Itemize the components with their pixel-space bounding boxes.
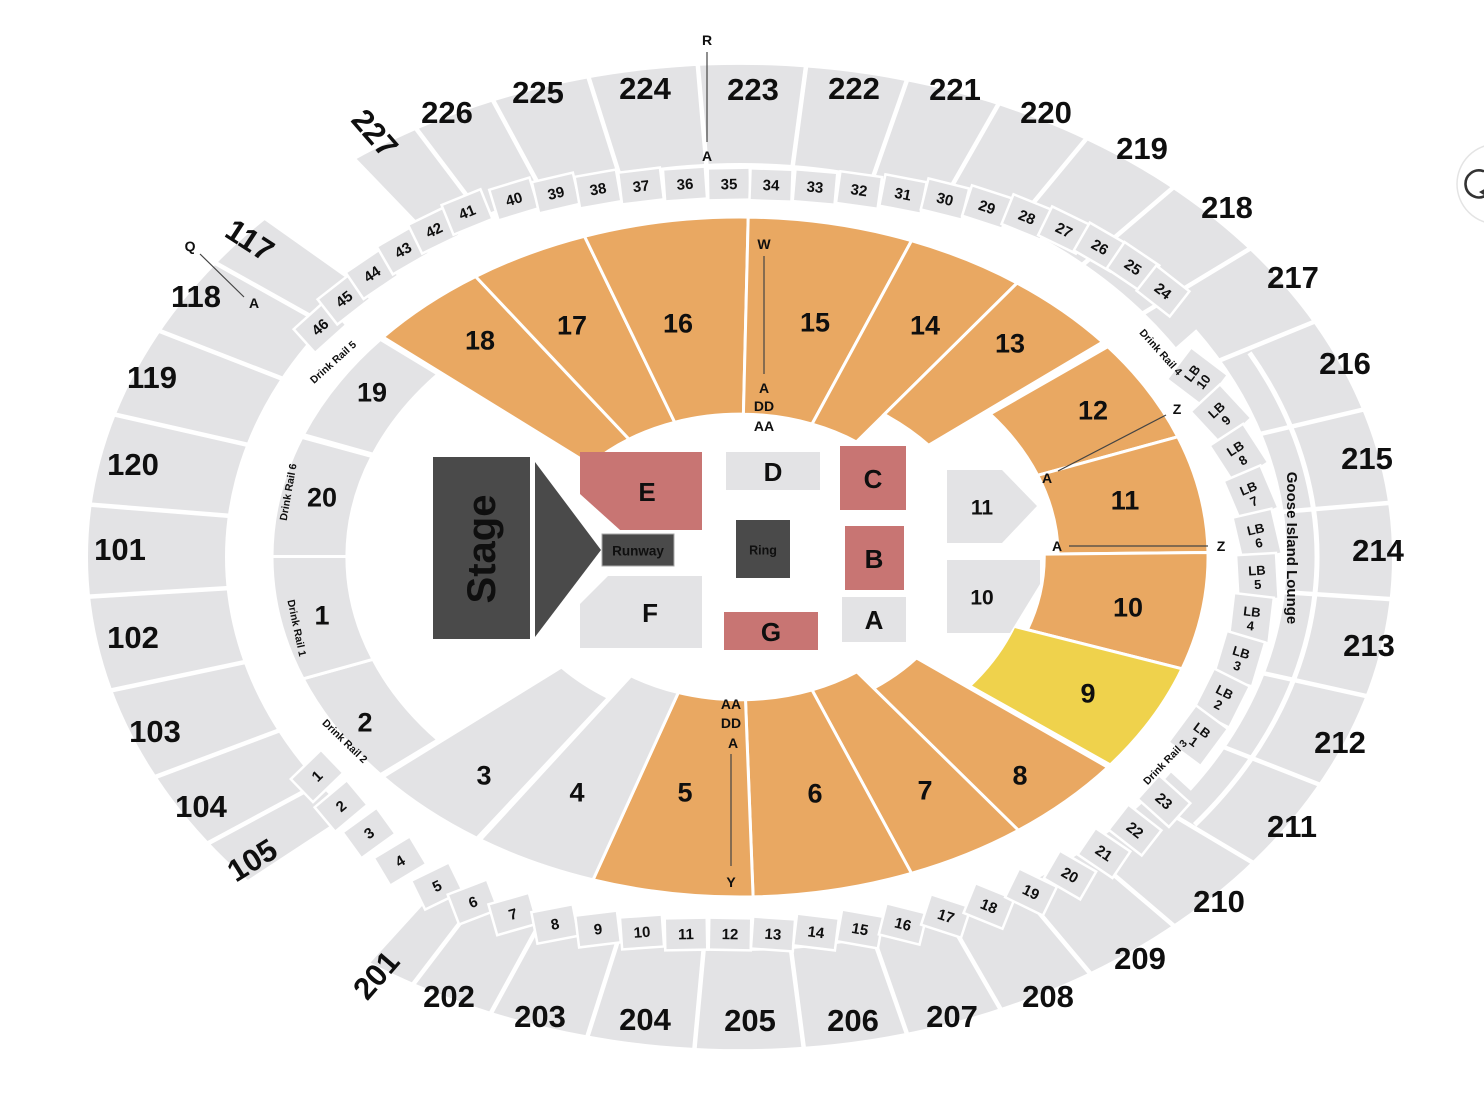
- row-section-lower-label-11: 11: [678, 926, 694, 943]
- seating-map-canvas: 1918171615141312111098765432120227226225…: [0, 0, 1484, 1120]
- section-label-19: 19: [357, 377, 387, 407]
- floor-label-10: 10: [970, 586, 993, 609]
- floor-label-E: E: [638, 477, 655, 507]
- row-marker-5-a: A: [728, 735, 738, 751]
- section-label-204: 204: [619, 1002, 671, 1037]
- section-label-207: 207: [926, 999, 978, 1034]
- row-section-lower-15[interactable]: 15: [837, 910, 884, 949]
- section-label-11: 11: [1111, 485, 1140, 515]
- section-label-16: 16: [663, 308, 693, 338]
- section-label-17: 17: [557, 310, 587, 340]
- section-label-20: 20: [307, 482, 337, 512]
- row-marker-5-y: Y: [726, 874, 736, 890]
- floor-label-C: C: [864, 464, 883, 494]
- section-label-222: 222: [828, 71, 880, 106]
- rotate-button-circle[interactable]: [1457, 144, 1484, 224]
- section-label-7: 7: [917, 775, 932, 805]
- section-label-214: 214: [1352, 533, 1404, 568]
- row-section-lower-8[interactable]: 8: [531, 904, 578, 943]
- section-label-13: 13: [995, 328, 1025, 358]
- section-label-12: 12: [1078, 395, 1108, 425]
- row-section-upper-label-35: 35: [721, 176, 738, 193]
- section-label-225: 225: [512, 75, 564, 110]
- section-label-219: 219: [1116, 131, 1168, 166]
- row-marker-12-z: Z: [1173, 401, 1182, 417]
- row-section-upper-label-33: 33: [806, 179, 824, 197]
- row-section-lower-11[interactable]: 11: [665, 918, 708, 951]
- section-label-218: 218: [1201, 190, 1253, 225]
- row-section-upper-38[interactable]: 38: [575, 170, 622, 209]
- section-label-5: 5: [677, 777, 692, 807]
- section-label-18: 18: [465, 325, 495, 355]
- section-label-102: 102: [107, 620, 159, 655]
- row-section-upper-36[interactable]: 36: [663, 167, 707, 202]
- row-section-upper-label-37: 37: [632, 177, 651, 196]
- row-marker-5-aa: AA: [721, 696, 741, 712]
- row-marker-12-a: A: [1042, 470, 1052, 486]
- section-label-211: 211: [1267, 809, 1317, 844]
- row-section-upper-label-36: 36: [676, 176, 694, 194]
- seating-map: 1918171615141312111098765432120227226225…: [0, 0, 1484, 1120]
- section-label-103: 103: [129, 714, 181, 749]
- section-label-104: 104: [175, 789, 227, 824]
- row-marker-15-dd: DD: [754, 398, 774, 414]
- row-marker-15-a: A: [759, 380, 769, 396]
- stage-label: Stage: [460, 495, 504, 604]
- ring-label: Ring: [749, 543, 777, 557]
- row-section-upper-31[interactable]: 31: [879, 174, 926, 213]
- row-marker-5-dd: DD: [721, 715, 741, 731]
- rotate-button[interactable]: [1457, 144, 1484, 224]
- section-label-217: 217: [1267, 260, 1319, 295]
- section-label-216: 216: [1319, 346, 1371, 381]
- row-section-lower-12[interactable]: 12: [709, 918, 752, 951]
- section-label-120: 120: [107, 447, 159, 482]
- row-section-upper-label-38: 38: [588, 180, 607, 200]
- row-section-lower-label-10: 10: [633, 924, 651, 942]
- row-section-upper-label-31: 31: [893, 185, 913, 205]
- section-label-224: 224: [619, 71, 671, 106]
- floor-label-F: F: [642, 598, 658, 628]
- row-section-lower-label-13: 13: [764, 926, 782, 944]
- row-marker-top-last: A: [702, 148, 712, 164]
- row-section-lower-14[interactable]: 14: [793, 914, 839, 951]
- section-label-206: 206: [827, 1003, 879, 1038]
- section-label-221: 221: [929, 72, 981, 107]
- row-section-lower-9[interactable]: 9: [575, 911, 621, 948]
- section-label-223: 223: [727, 72, 779, 107]
- row-marker-top-first: R: [702, 32, 712, 48]
- row-section-upper-33[interactable]: 33: [793, 169, 838, 205]
- section-label-212: 212: [1314, 725, 1366, 760]
- section-label-1: 1: [314, 600, 329, 630]
- row-marker-11-a: A: [1052, 538, 1062, 554]
- row-marker-11-z: Z: [1217, 538, 1226, 554]
- floor-label-11: 11: [971, 496, 994, 519]
- section-label-118: 118: [171, 279, 221, 314]
- section-label-215: 215: [1341, 441, 1393, 476]
- section-label-2: 2: [357, 707, 372, 737]
- row-section-upper-label-34: 34: [762, 177, 780, 195]
- row-section-upper-34[interactable]: 34: [749, 168, 792, 201]
- runway-label: Runway: [612, 544, 664, 559]
- row-section-lower-13[interactable]: 13: [751, 917, 795, 952]
- section-label-101: 101: [94, 532, 146, 567]
- floor-label-B: B: [865, 544, 884, 574]
- row-section-lower-label-12: 12: [721, 926, 738, 943]
- section-label-10: 10: [1113, 592, 1143, 622]
- section-label-226: 226: [421, 95, 473, 130]
- row-marker-left-first: Q: [185, 238, 196, 254]
- section-label-205: 205: [724, 1003, 776, 1038]
- section-label-3: 3: [476, 760, 491, 790]
- row-section-upper-label-32: 32: [849, 181, 868, 200]
- row-marker-15-w: W: [757, 236, 771, 252]
- section-label-9: 9: [1080, 678, 1095, 708]
- row-section-upper-35[interactable]: 35: [708, 168, 751, 201]
- section-label-210: 210: [1193, 884, 1245, 919]
- section-label-209: 209: [1114, 941, 1166, 976]
- lounge-label: Goose Island Lounge: [1283, 472, 1300, 625]
- section-label-15: 15: [800, 307, 830, 337]
- section-label-213: 213: [1343, 628, 1395, 663]
- section-label-8: 8: [1012, 760, 1027, 790]
- row-section-upper-32[interactable]: 32: [836, 171, 882, 209]
- floor-label-G: G: [761, 617, 781, 647]
- floor-label-D: D: [764, 457, 783, 487]
- section-label-14: 14: [910, 310, 940, 340]
- section-label-220: 220: [1020, 95, 1072, 130]
- floor-label-A: A: [865, 605, 884, 635]
- floor-section-F[interactable]: [580, 576, 702, 648]
- section-label-208: 208: [1022, 979, 1074, 1014]
- row-marker-left-last: A: [249, 295, 259, 311]
- section-label-6: 6: [807, 778, 822, 808]
- row-section-upper-37[interactable]: 37: [618, 168, 664, 205]
- section-label-119: 119: [127, 360, 177, 395]
- row-marker-15-aa: AA: [754, 418, 774, 434]
- row-section-lower-10[interactable]: 10: [620, 915, 664, 950]
- section-label-203: 203: [514, 999, 566, 1034]
- row-section-lower-label-14: 14: [807, 923, 826, 942]
- section-label-202: 202: [423, 979, 475, 1014]
- row-section-lower-label-15: 15: [850, 920, 869, 940]
- section-label-4: 4: [569, 777, 584, 807]
